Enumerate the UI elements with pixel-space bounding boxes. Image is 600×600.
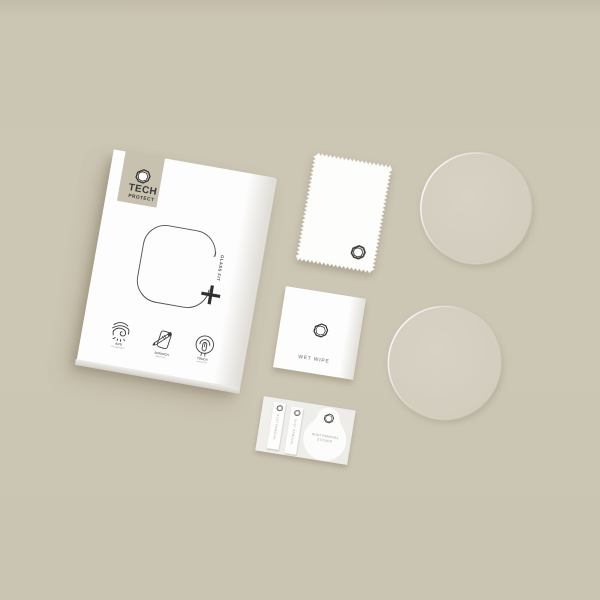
svg-text:GLASS FIT: GLASS FIT [216, 255, 226, 282]
